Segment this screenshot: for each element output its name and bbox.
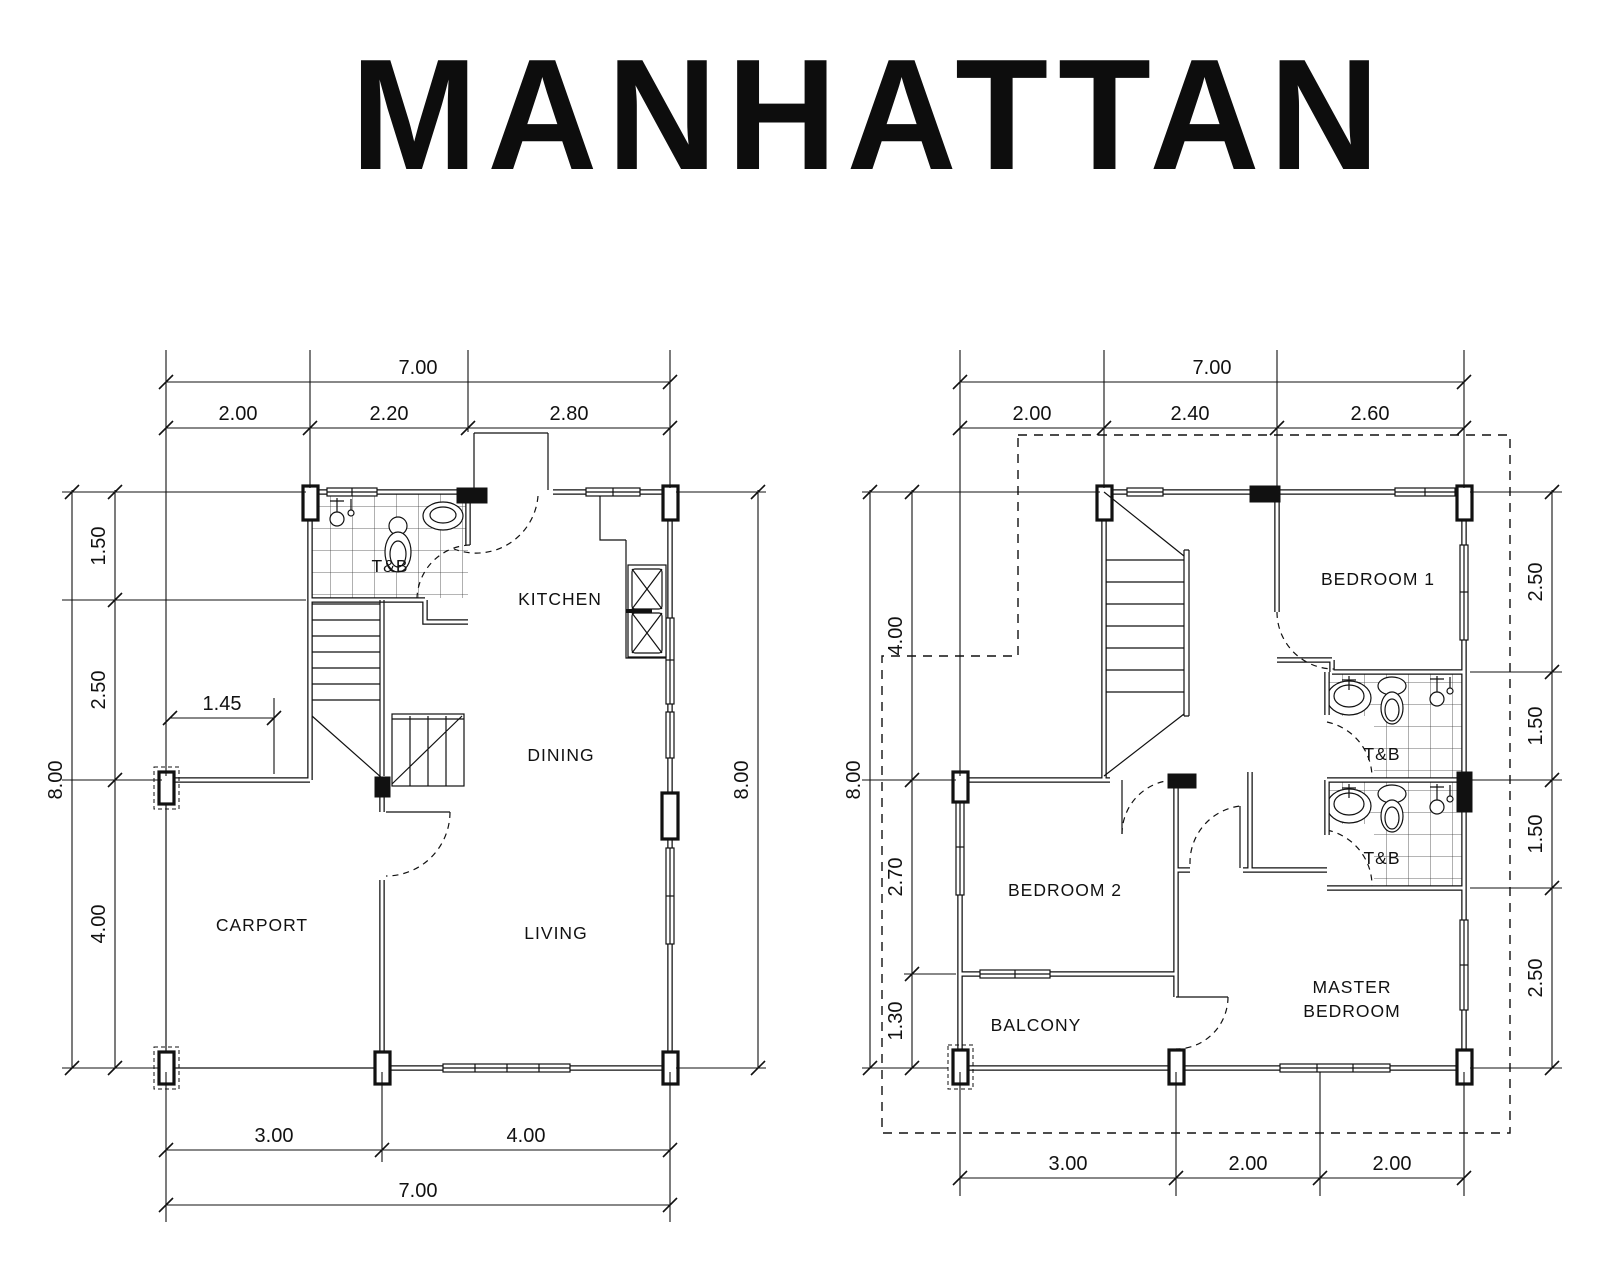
dim-ground-top-total: 7.00: [399, 357, 438, 379]
label-master-line1: MASTER: [1313, 977, 1392, 997]
dim-second-top-3: 2.60: [1351, 403, 1390, 425]
balcony-door-swing: [1176, 997, 1228, 1049]
dim-ground-top-1: 2.00: [219, 403, 258, 425]
label-living: LIVING: [524, 923, 587, 943]
label-bedroom2: BEDROOM 2: [1008, 880, 1122, 900]
label-tb-ground: T&B: [371, 556, 408, 576]
ground-stairs: [312, 600, 464, 786]
label-dining: DINING: [527, 745, 594, 765]
label-tb1: T&B: [1363, 744, 1400, 764]
dim-second-left-total: 8.00: [843, 761, 865, 800]
label-master-line2: BEDROOM: [1303, 1001, 1400, 1021]
dim-second-left-1: 4.00: [885, 617, 907, 656]
dim-second-top-2: 2.40: [1171, 403, 1210, 425]
second-floor-plan: 7.00 2.00 2.40 2.60 8.00 4.00 2.70 1.30 …: [843, 350, 1562, 1196]
dim-second-right-3: 1.50: [1525, 815, 1547, 854]
dim-ground-bottom-1: 3.00: [255, 1125, 294, 1147]
label-balcony: BALCONY: [991, 1015, 1082, 1035]
entry-porch: [474, 433, 548, 490]
entry-jamb-column: [457, 488, 487, 503]
dim-ground-left-total: 8.00: [45, 761, 67, 800]
tb2-fixtures: [1327, 780, 1464, 887]
dim-ground-top-2: 2.20: [370, 403, 409, 425]
dim-ground-top-3: 2.80: [550, 403, 589, 425]
dim-second-bottom-3: 2.00: [1373, 1153, 1412, 1175]
dim-second-right-1: 2.50: [1525, 563, 1547, 602]
label-tb2: T&B: [1363, 848, 1400, 868]
dim-ground-inner: 1.45: [203, 693, 242, 715]
dim-second-right-2: 1.50: [1525, 707, 1547, 746]
dim-second-bottom-1: 3.00: [1049, 1153, 1088, 1175]
dim-ground-right-total: 8.00: [731, 761, 753, 800]
landing-column: [1250, 486, 1280, 502]
second-doors: [1122, 612, 1334, 1049]
dim-ground-left-2: 2.50: [88, 671, 110, 710]
carport-door-swing: [386, 812, 450, 876]
dim-second-top-total: 7.00: [1193, 357, 1232, 379]
dim-second-left-3: 1.30: [885, 1002, 907, 1041]
dim-ground-bottom-total: 7.00: [399, 1180, 438, 1202]
dim-ground-left-1: 1.50: [88, 527, 110, 566]
dim-second-top-1: 2.00: [1013, 403, 1052, 425]
floorplan-sheet: MANHATTAN: [0, 0, 1600, 1280]
second-stairs: [1104, 492, 1189, 776]
label-bedroom1: BEDROOM 1: [1321, 569, 1435, 589]
dim-ground-bottom-2: 4.00: [507, 1125, 546, 1147]
dim-second-left-2: 2.70: [885, 858, 907, 897]
ground-floor-plan: 7.00 2.00 2.20 2.80 8.00 1.50 2.50 4.00 …: [45, 350, 766, 1222]
dim-second-right-4: 2.50: [1525, 959, 1547, 998]
dim-second-bottom-2: 2.00: [1229, 1153, 1268, 1175]
label-carport: CARPORT: [216, 915, 308, 935]
master-door-swing: [1190, 806, 1240, 864]
floorplan-drawing: 7.00 2.00 2.20 2.80 8.00 1.50 2.50 4.00 …: [0, 0, 1600, 1280]
label-kitchen: KITCHEN: [518, 589, 602, 609]
dim-ground-left-3: 4.00: [88, 905, 110, 944]
